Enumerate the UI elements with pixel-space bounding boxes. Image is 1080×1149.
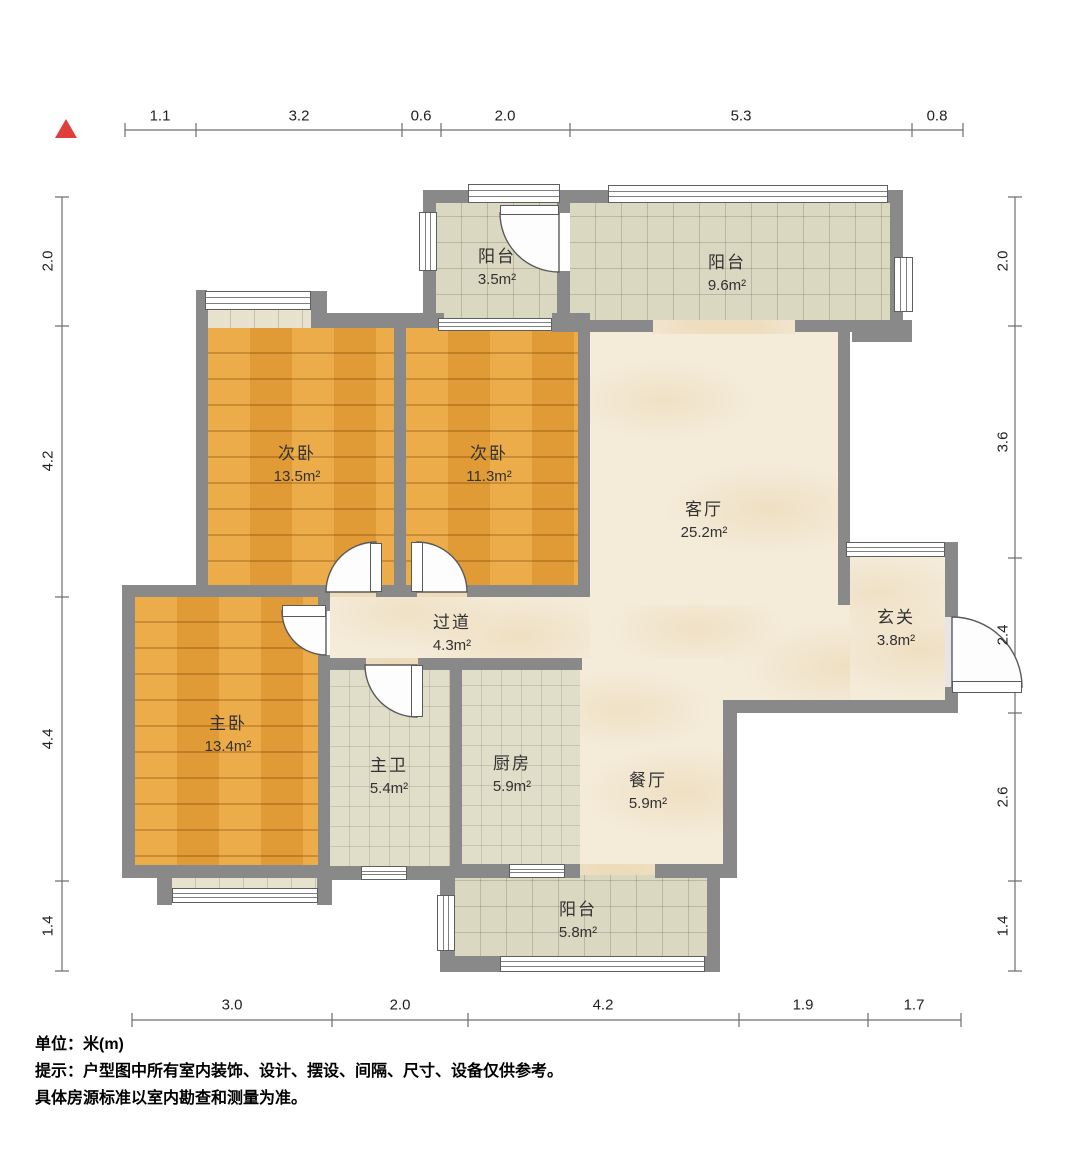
- room-area: 11.3m²: [466, 468, 512, 485]
- room-name: 次卧: [274, 439, 321, 464]
- door-leaf-balcony-small: [500, 205, 559, 215]
- dim-bottom-0: 3.0: [222, 997, 243, 1014]
- door-leaf-bedroom-left: [370, 543, 382, 592]
- dim-top-2: 0.6: [411, 108, 432, 125]
- room-label-bedroom-second-right: 次卧 11.3m²: [466, 439, 512, 485]
- dim-top-4: 5.3: [731, 108, 752, 125]
- door-arc-master-bathroom: [365, 665, 417, 717]
- dim-bottom-4: 1.7: [904, 997, 925, 1014]
- dim-right-3: 2.6: [995, 787, 1012, 808]
- room-name: 阳台: [708, 248, 746, 273]
- dim-top-1: 3.2: [289, 108, 310, 125]
- dim-right-1: 3.6: [995, 432, 1012, 453]
- room-label-dining-room: 餐厅 5.9m²: [629, 766, 667, 812]
- dimension-line-bottom: [132, 1013, 961, 1027]
- floor-plan: 阳台 3.5m² 阳台 9.6m² 次卧 13.5m² 次卧 11.3m² 客厅…: [0, 0, 1080, 1149]
- door-arc-bedroom-left: [326, 542, 376, 592]
- dim-right-2: 2.4: [995, 625, 1012, 646]
- dim-left-2: 4.4: [40, 729, 57, 750]
- dim-top-3: 2.0: [495, 108, 516, 125]
- room-label-balcony-north-small: 阳台 3.5m²: [478, 242, 516, 288]
- door-leaf-bedroom-right: [411, 542, 423, 592]
- door-leaf-master-bathroom: [411, 665, 423, 717]
- dim-bottom-1: 2.0: [390, 997, 411, 1014]
- room-name: 玄关: [877, 603, 915, 628]
- room-label-master-bedroom: 主卧 13.4m²: [205, 709, 252, 755]
- dim-left-0: 2.0: [40, 251, 57, 272]
- room-area: 13.5m²: [274, 468, 321, 485]
- dimension-and-door-layer: [0, 0, 1080, 1149]
- room-name: 餐厅: [629, 766, 667, 791]
- dimension-line-top: [125, 123, 963, 137]
- door-leaf-entry: [952, 681, 1022, 693]
- dim-left-1: 4.2: [40, 451, 57, 472]
- dim-right-4: 1.4: [995, 916, 1012, 937]
- door-arc-entry: [952, 617, 1022, 687]
- door-leaf-master-bedroom: [282, 605, 326, 617]
- room-name: 阳台: [559, 895, 597, 920]
- dimension-line-right: [1008, 197, 1022, 971]
- room-area: 5.4m²: [370, 780, 408, 797]
- dim-bottom-2: 4.2: [593, 997, 614, 1014]
- room-area: 5.9m²: [493, 778, 531, 795]
- room-area: 25.2m²: [681, 524, 728, 541]
- footer-notes: 单位：米(m) 提示：户型图中所有室内装饰、设计、摆设、间隔、尺寸、设备仅供参考…: [35, 1031, 563, 1112]
- room-name: 客厅: [681, 495, 728, 520]
- room-area: 9.6m²: [708, 277, 746, 294]
- room-name: 厨房: [493, 749, 531, 774]
- room-name: 阳台: [478, 242, 516, 267]
- room-name: 次卧: [466, 439, 512, 464]
- footer-tip-line-1: 提示：户型图中所有室内装饰、设计、摆设、间隔、尺寸、设备仅供参考。: [35, 1058, 563, 1085]
- dim-right-0: 2.0: [995, 251, 1012, 272]
- door-arc-bedroom-right: [417, 542, 467, 592]
- door-arc-master-bedroom: [282, 611, 326, 655]
- room-label-balcony-south: 阳台 5.8m²: [559, 895, 597, 941]
- dim-bottom-3: 1.9: [793, 997, 814, 1014]
- footer-tip-line-2: 具体房源标准以室内勘查和测量为准。: [35, 1085, 563, 1112]
- north-indicator-icon: [55, 119, 77, 138]
- footer-unit-line: 单位：米(m): [35, 1031, 563, 1058]
- room-area: 4.3m²: [433, 637, 471, 654]
- room-label-hallway: 过道 4.3m²: [433, 608, 471, 654]
- room-label-balcony-north-large: 阳台 9.6m²: [708, 248, 746, 294]
- dimension-line-left: [55, 197, 69, 971]
- room-area: 5.8m²: [559, 924, 597, 941]
- dim-top-0: 1.1: [150, 108, 171, 125]
- room-label-foyer: 玄关 3.8m²: [877, 603, 915, 649]
- room-area: 13.4m²: [205, 738, 252, 755]
- room-area: 3.5m²: [478, 271, 516, 288]
- room-name: 主卧: [205, 709, 252, 734]
- dim-left-3: 1.4: [40, 916, 57, 937]
- room-label-bedroom-second-left: 次卧 13.5m²: [274, 439, 321, 485]
- room-area: 3.8m²: [877, 632, 915, 649]
- room-label-master-bathroom: 主卫 5.4m²: [370, 751, 408, 797]
- room-name: 过道: [433, 608, 471, 633]
- room-area: 5.9m²: [629, 795, 667, 812]
- room-name: 主卫: [370, 751, 408, 776]
- room-label-kitchen: 厨房 5.9m²: [493, 749, 531, 795]
- dim-top-5: 0.8: [927, 108, 948, 125]
- room-label-living-room: 客厅 25.2m²: [681, 495, 728, 541]
